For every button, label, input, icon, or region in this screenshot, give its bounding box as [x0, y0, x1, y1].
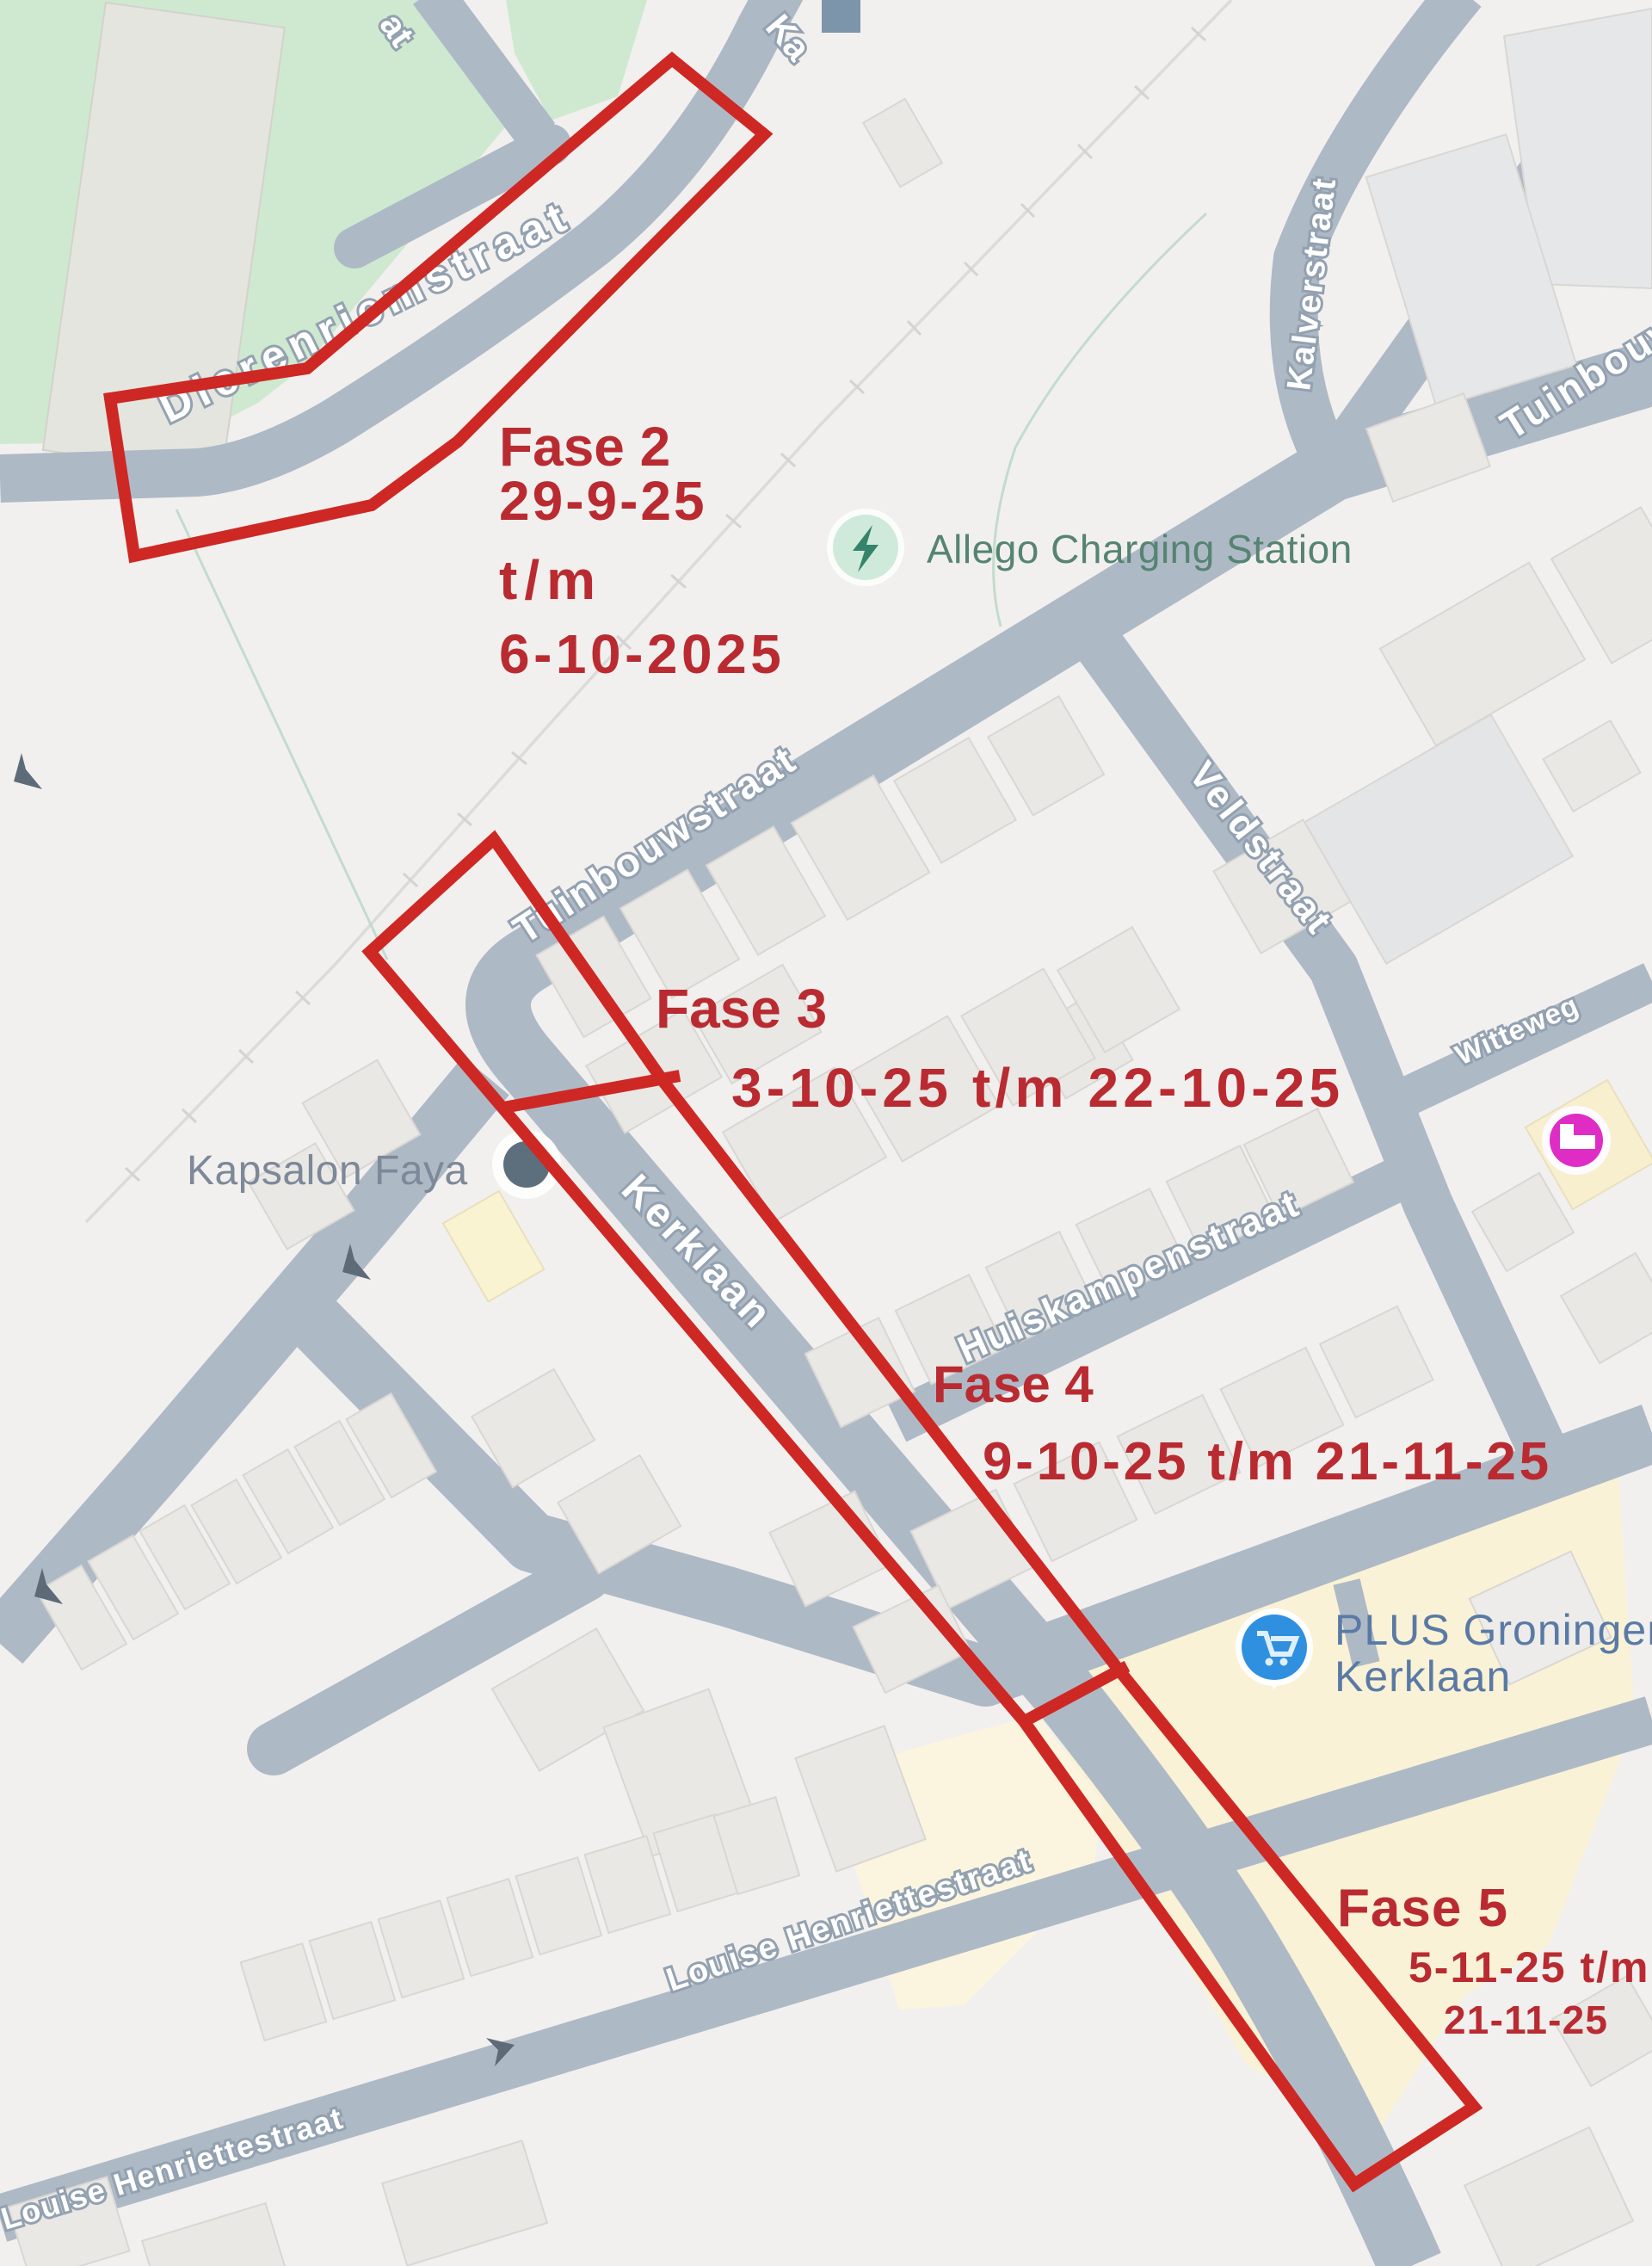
svg-text:Allego Charging Station: Allego Charging Station: [927, 527, 1353, 571]
svg-text:5-11-25 t/m: 5-11-25 t/m: [1409, 1943, 1649, 1991]
svg-text:21-11-25: 21-11-25: [1444, 1997, 1608, 2042]
svg-text:Kapsalon Faya: Kapsalon Faya: [187, 1148, 468, 1194]
svg-text:Fase 2: Fase 2: [499, 416, 670, 478]
svg-text:3-10-25 t/m 22-10-25: 3-10-25 t/m 22-10-25: [731, 1057, 1344, 1119]
svg-text:29-9-25: 29-9-25: [499, 470, 707, 532]
svg-text:t/m: t/m: [499, 549, 602, 611]
svg-text:Fase 3: Fase 3: [656, 978, 827, 1040]
svg-text:6-10-2025: 6-10-2025: [499, 623, 785, 685]
svg-text:PLUS Groningen: PLUS Groningen: [1335, 1606, 1652, 1654]
svg-text:Fase 4: Fase 4: [933, 1355, 1094, 1413]
svg-text:9-10-25 t/m 21-11-25: 9-10-25 t/m 21-11-25: [983, 1432, 1552, 1491]
svg-text:Kerklaan: Kerklaan: [1335, 1652, 1511, 1701]
svg-text:Fase 5: Fase 5: [1337, 1879, 1508, 1938]
